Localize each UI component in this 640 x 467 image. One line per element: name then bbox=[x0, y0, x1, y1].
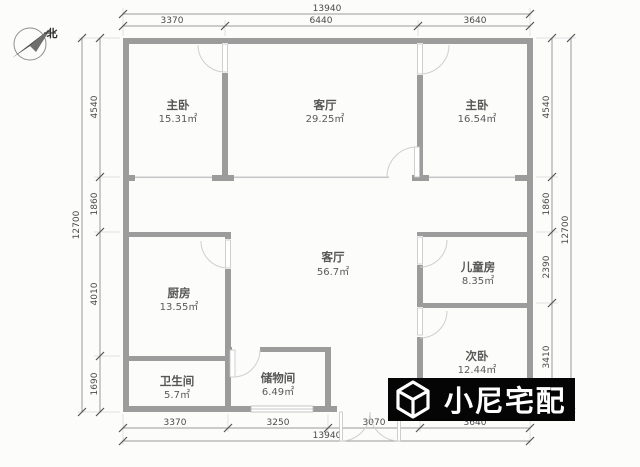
dim-top-seg-2: 6440 bbox=[310, 16, 333, 26]
door-arc bbox=[233, 350, 260, 377]
door-arc bbox=[420, 311, 447, 338]
room-label-kids-room: 儿童房 8.35㎡ bbox=[460, 260, 496, 287]
room-name: 厨房 bbox=[168, 286, 191, 300]
dim-right-seg-2: 1860 bbox=[542, 192, 552, 215]
compass: 北 bbox=[12, 26, 58, 60]
room-area: 12.44㎡ bbox=[458, 364, 497, 376]
room-name: 主卧 bbox=[466, 98, 489, 112]
room-label-living-hall: 客厅 56.7㎡ bbox=[317, 250, 349, 278]
dim-left-seg-1: 4540 bbox=[90, 95, 100, 118]
room-area: 5.7㎡ bbox=[164, 389, 190, 401]
dimension-left: 12700 4540 1860 4010 1690 bbox=[72, 34, 104, 416]
wall-bathroom-top bbox=[129, 356, 225, 361]
room-label-second-bedroom: 次卧 12.44㎡ bbox=[458, 349, 497, 376]
floor-plan-page: 13940 3370 6440 3640 3370 3250 3070 3640… bbox=[0, 0, 640, 467]
dim-top-overall: 13940 bbox=[313, 4, 342, 14]
window-storage bbox=[251, 406, 313, 412]
dim-top-seg-1: 3370 bbox=[161, 16, 184, 26]
entry-door-arc bbox=[341, 412, 370, 441]
dim-bottom-seg-2: 3250 bbox=[267, 418, 290, 428]
room-label-living-room-top: 客厅 29.25㎡ bbox=[306, 98, 345, 125]
door-arc bbox=[198, 45, 225, 72]
wall-stub bbox=[123, 175, 135, 181]
wall-outer-top bbox=[123, 38, 533, 44]
door-leaf bbox=[226, 240, 231, 268]
door-leaf bbox=[223, 44, 228, 72]
room-name: 储物间 bbox=[261, 371, 296, 385]
door-arc bbox=[387, 147, 417, 177]
dimension-right: 4540 1860 2390 3410 12700 bbox=[542, 34, 575, 416]
room-area: 13.55㎡ bbox=[160, 301, 199, 313]
door-leaf bbox=[418, 44, 423, 74]
door-opening bbox=[232, 347, 260, 352]
room-name: 客厅 bbox=[313, 98, 337, 112]
wall-stub bbox=[515, 175, 533, 181]
dim-left-seg-2: 1860 bbox=[90, 192, 100, 215]
floor-plan-drawing: 13940 3370 6440 3640 3370 3250 3070 3640… bbox=[0, 0, 640, 467]
room-name: 次卧 bbox=[466, 349, 489, 363]
wall-storage-right bbox=[325, 347, 331, 412]
room-area: 6.49㎡ bbox=[262, 386, 294, 398]
room-name: 客厅 bbox=[321, 250, 345, 264]
door-leaf bbox=[230, 350, 235, 377]
wall-kidsroom-bottom bbox=[417, 303, 533, 308]
partition-line bbox=[129, 177, 527, 179]
room-label-kitchen: 厨房 13.55㎡ bbox=[160, 286, 199, 313]
room-area: 15.31㎡ bbox=[159, 113, 198, 125]
entry-door-leaf bbox=[340, 412, 343, 441]
room-label-bathroom: 卫生间 5.7㎡ bbox=[160, 374, 195, 401]
door-leaf bbox=[418, 308, 423, 335]
dim-left-seg-3: 4010 bbox=[90, 282, 100, 305]
dimension-top: 13940 3370 6440 3640 bbox=[119, 4, 534, 30]
wall-stub bbox=[212, 175, 234, 181]
dim-bottom-seg-1: 3370 bbox=[164, 418, 187, 428]
room-area: 29.25㎡ bbox=[306, 113, 345, 125]
wall-outer-right bbox=[527, 38, 533, 412]
room-area: 16.54㎡ bbox=[458, 113, 497, 125]
wall-kidsroom-top bbox=[417, 232, 533, 237]
dim-left-overall: 12700 bbox=[72, 210, 82, 239]
door-opening bbox=[389, 175, 415, 180]
door-arc bbox=[201, 241, 228, 268]
dim-left-seg-4: 1690 bbox=[90, 372, 100, 395]
dim-right-seg-3: 2390 bbox=[542, 255, 552, 278]
room-area: 8.35㎡ bbox=[462, 275, 494, 287]
north-label: 北 bbox=[47, 26, 58, 40]
room-name: 主卧 bbox=[167, 98, 190, 112]
door-arc bbox=[420, 240, 447, 267]
room-label-master-bedroom-left: 主卧 15.31㎡ bbox=[159, 98, 198, 125]
dim-right-overall: 12700 bbox=[561, 215, 571, 244]
room-name: 卫生间 bbox=[160, 374, 195, 388]
dim-right-seg-4: 3410 bbox=[542, 345, 552, 368]
compass-circle bbox=[14, 28, 46, 60]
watermark: 小尼宅配 bbox=[388, 378, 575, 421]
dim-bottom-overall: 13940 bbox=[313, 431, 342, 441]
room-area: 56.7㎡ bbox=[317, 266, 349, 278]
room-label-master-bedroom-right: 主卧 16.54㎡ bbox=[458, 98, 497, 125]
room-label-storage-room: 储物间 6.49㎡ bbox=[261, 371, 296, 398]
door-leaf bbox=[418, 237, 423, 264]
watermark-brand-text: 小尼宅配 bbox=[444, 384, 566, 418]
door-arc bbox=[420, 45, 449, 74]
wall-kitchen-top bbox=[123, 232, 231, 237]
dim-top-seg-3: 3640 bbox=[464, 16, 487, 26]
dimension-bottom: 3370 3250 3070 3640 13940 bbox=[119, 418, 534, 445]
dim-right-seg-1: 4540 bbox=[542, 95, 552, 118]
wall-outer-left bbox=[123, 38, 129, 412]
door-leaf bbox=[415, 147, 420, 177]
room-name: 儿童房 bbox=[460, 260, 496, 274]
